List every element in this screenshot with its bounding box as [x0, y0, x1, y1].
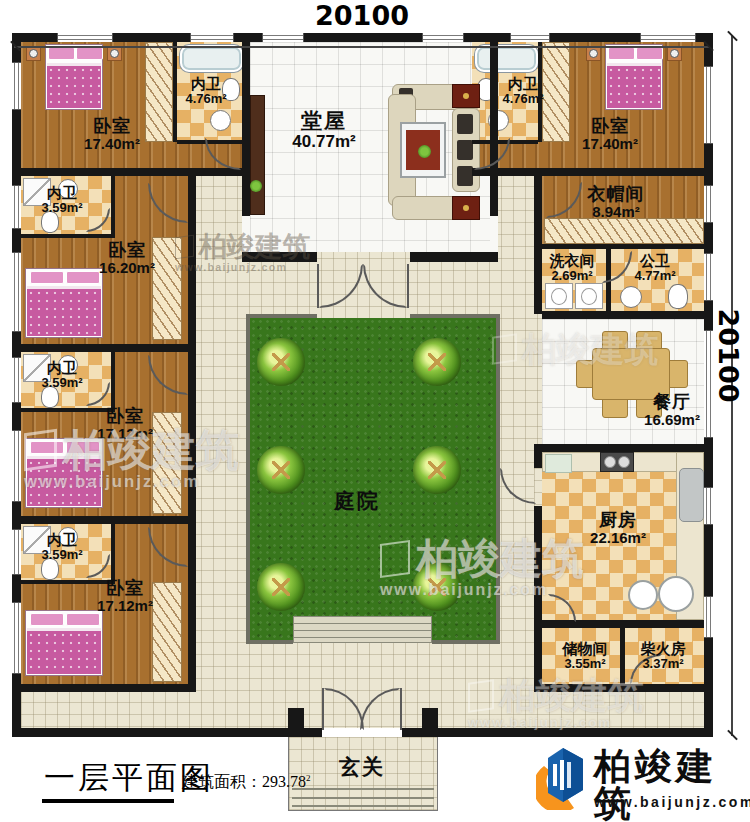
window — [640, 33, 696, 42]
room-label-courtyard: 庭院 — [334, 490, 380, 513]
room-area: 17.40m² — [84, 137, 140, 153]
room-area: 16.20m² — [99, 261, 155, 277]
wall — [472, 168, 704, 176]
brand-name: 柏竣建筑 — [594, 748, 750, 822]
porch-step — [292, 788, 434, 790]
side-table — [452, 196, 480, 220]
window — [704, 253, 713, 301]
room-label-ensuite-ne: 内卫 4.76m² — [502, 76, 543, 106]
room-label-bath-w1: 内卫 3.59m² — [41, 185, 82, 215]
room-label-laundry: 洗衣间 2.69m² — [550, 253, 595, 283]
toilet — [668, 284, 688, 309]
wall — [111, 352, 115, 408]
window — [12, 529, 21, 575]
wall — [111, 176, 115, 234]
wardrobe-w4 — [152, 582, 182, 682]
window — [12, 430, 21, 502]
room-name: 卧室 — [99, 241, 155, 260]
wall — [534, 176, 542, 314]
window — [12, 357, 21, 403]
porch-step — [292, 797, 434, 799]
bathtub — [475, 45, 538, 72]
wall — [542, 444, 704, 452]
brand-logo-icon — [536, 746, 588, 810]
nightstand — [26, 46, 41, 61]
bed — [605, 44, 663, 110]
room-name: 内卫 — [185, 76, 226, 92]
tree — [413, 338, 461, 386]
sink — [210, 110, 231, 131]
courtyard-wall — [410, 314, 500, 318]
bed — [25, 268, 103, 338]
wardrobe-w2 — [152, 237, 182, 340]
room-area: 4.76m² — [185, 92, 226, 106]
area-value: 293.78 — [262, 773, 306, 790]
side-table — [452, 84, 480, 108]
window — [12, 62, 21, 110]
window — [510, 33, 550, 42]
basin — [658, 576, 694, 612]
room-area: 3.37m² — [641, 657, 686, 671]
wall — [21, 516, 188, 524]
room-label-cloakroom: 衣帽间 8.94m² — [588, 185, 645, 221]
window — [12, 185, 21, 229]
window — [422, 33, 464, 42]
tree — [257, 446, 305, 494]
room-area: 3.59m² — [41, 548, 82, 562]
room-name: 衣帽间 — [588, 185, 645, 204]
room-name: 堂屋 — [292, 110, 355, 133]
room-area: 17.12m² — [97, 599, 153, 615]
room-label-dining: 餐厅 16.69m² — [644, 393, 700, 429]
bed — [25, 610, 103, 676]
porch-step — [292, 805, 434, 807]
room-name: 厨房 — [590, 511, 646, 530]
nightstand — [107, 46, 122, 61]
room-name: 卧室 — [97, 407, 153, 426]
dimension-right-value: 20100 — [713, 306, 744, 406]
wall — [542, 311, 704, 319]
room-area: 17.12m² — [97, 427, 153, 443]
washing-machine — [545, 283, 573, 309]
dimension-top-value: 20100 — [312, 0, 412, 31]
tree — [413, 563, 461, 611]
window — [704, 596, 713, 638]
title-underline — [42, 799, 174, 803]
wardrobe-nw — [145, 42, 173, 142]
room-label-bath-w3: 内卫 3.59m² — [41, 532, 82, 562]
area-label: 建筑面积： — [182, 773, 262, 790]
tree — [257, 563, 305, 611]
room-area: 4.77m² — [634, 269, 675, 283]
courtyard-wall — [496, 314, 500, 644]
wall — [542, 684, 704, 692]
door-opening — [490, 216, 498, 252]
exterior-wall — [12, 728, 322, 737]
room-label-foyer: 玄关 — [339, 756, 385, 779]
wall — [21, 684, 188, 692]
courtyard-wall — [432, 640, 500, 644]
window — [704, 185, 713, 223]
room-label-storage: 储物间 3.55m² — [563, 641, 608, 671]
tree — [413, 446, 461, 494]
sink — [620, 286, 642, 308]
room-area: 16.69m² — [644, 413, 700, 429]
window — [262, 33, 304, 42]
wall — [173, 42, 177, 142]
courtyard-wall — [246, 314, 317, 318]
window — [57, 33, 113, 42]
exterior-wall — [12, 33, 713, 42]
room-name: 公卫 — [634, 253, 675, 269]
nightstand — [586, 46, 601, 61]
cloakroom-wardrobe — [544, 218, 704, 244]
room-name: 玄关 — [339, 756, 385, 779]
wardrobe-w3 — [152, 412, 182, 514]
window — [190, 33, 234, 42]
stove — [600, 452, 634, 472]
basin — [628, 580, 658, 610]
room-label-bedroom-w3: 卧室 17.12m² — [97, 407, 153, 443]
room-name: 卧室 — [582, 117, 638, 136]
dimension-line-top — [14, 46, 710, 48]
floor-plan: 卧室 17.40m² 内卫 4.76m² 堂屋 40.77m² 内卫 4.76m… — [0, 0, 750, 822]
wall — [111, 524, 115, 580]
room-area: 3.59m² — [41, 201, 82, 215]
room-label-public-bath: 公卫 4.77m² — [634, 253, 675, 283]
room-area: 8.94m² — [588, 205, 645, 221]
room-name: 卧室 — [84, 117, 140, 136]
wall — [21, 234, 115, 238]
bed — [25, 438, 103, 508]
room-name: 洗衣间 — [550, 253, 595, 269]
bed — [45, 44, 103, 110]
room-name: 庭院 — [334, 490, 380, 513]
room-label-bedroom-w2: 卧室 16.20m² — [99, 241, 155, 277]
kitchen-sink — [679, 468, 704, 522]
chair — [667, 360, 688, 388]
window — [12, 252, 21, 332]
room-label-hall: 堂屋 40.77m² — [292, 110, 355, 151]
room-label-bedroom-w4: 卧室 17.12m² — [97, 579, 153, 615]
wall — [242, 252, 317, 262]
courtyard-steps — [293, 616, 432, 643]
room-name: 内卫 — [41, 185, 82, 201]
coffee-table — [400, 122, 446, 178]
door-leaf — [400, 688, 402, 730]
room-name: 卧室 — [97, 579, 153, 598]
wall — [21, 168, 242, 176]
brand-url: www.baijunjz.com — [594, 794, 750, 810]
room-area: 40.77m² — [292, 133, 355, 151]
room-name: 内卫 — [502, 76, 543, 92]
room-label-bedroom-ne: 卧室 17.40m² — [582, 117, 638, 153]
room-area: 3.55m² — [563, 657, 608, 671]
window — [704, 487, 713, 525]
room-name: 柴火房 — [641, 641, 686, 657]
tv-cabinet — [250, 95, 265, 215]
area-sup: 2 — [306, 773, 311, 783]
wardrobe-ne — [542, 42, 570, 142]
room-name: 内卫 — [41, 532, 82, 548]
exterior-wall — [402, 728, 713, 737]
bathtub — [180, 45, 243, 72]
room-area: 2.69m² — [550, 269, 595, 283]
wall — [542, 244, 704, 249]
wall — [410, 252, 498, 262]
plant — [250, 180, 262, 192]
window — [704, 66, 713, 144]
cutting-board — [545, 454, 572, 473]
tree — [257, 338, 305, 386]
door-leaf — [407, 264, 409, 308]
room-area: 4.76m² — [502, 92, 543, 106]
wall — [620, 628, 625, 684]
room-label-ensuite-nw: 内卫 4.76m² — [185, 76, 226, 106]
room-label-firewood: 柴火房 3.37m² — [641, 641, 686, 671]
building-area-note: 建筑面积：293.782 — [182, 772, 311, 793]
room-name: 餐厅 — [644, 393, 700, 412]
courtyard-wall — [246, 314, 250, 644]
room-label-kitchen: 厨房 22.16m² — [590, 511, 646, 547]
room-label-bath-w2: 内卫 3.59m² — [41, 360, 82, 390]
room-name: 储物间 — [563, 641, 608, 657]
room-name: 内卫 — [41, 360, 82, 376]
courtyard-wall — [246, 640, 293, 644]
nightstand — [667, 46, 682, 61]
room-area: 22.16m² — [590, 531, 646, 547]
window — [12, 602, 21, 674]
washing-machine — [575, 283, 603, 309]
room-area: 17.40m² — [582, 137, 638, 153]
door-opening — [242, 216, 250, 252]
wall — [21, 344, 188, 352]
room-label-bedroom-nw: 卧室 17.40m² — [84, 117, 140, 153]
wall — [188, 176, 196, 692]
room-area: 3.59m² — [41, 376, 82, 390]
